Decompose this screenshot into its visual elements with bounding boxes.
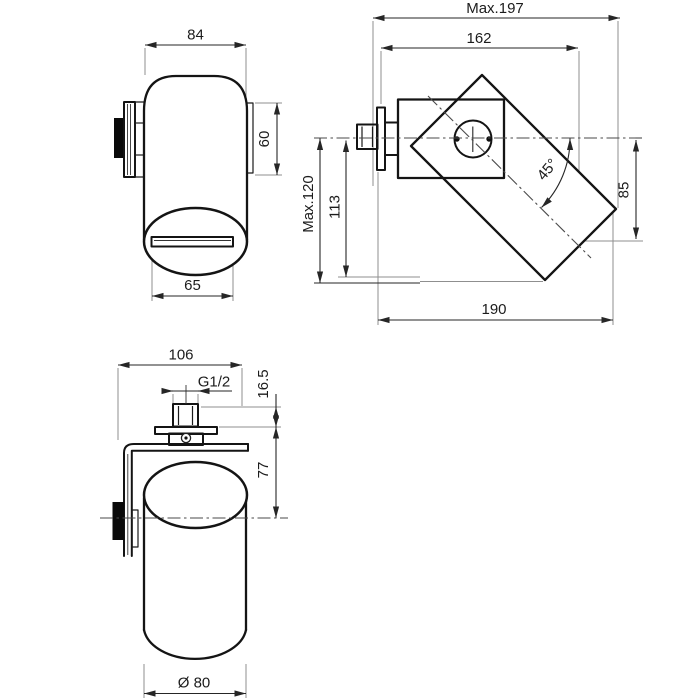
dim-side-outlet-offset: 85 bbox=[616, 182, 633, 199]
pivot-dot-right bbox=[486, 136, 491, 141]
spout-dimension-drawing: 84 60 65 Max.197 bbox=[0, 0, 700, 700]
dim-top-thread: G1/2 bbox=[198, 374, 231, 391]
dim-side-depth: 190 bbox=[481, 301, 506, 318]
bracket-plate bbox=[124, 102, 135, 177]
screw-center-dot bbox=[184, 436, 187, 439]
dim-side-drop: 113 bbox=[327, 195, 344, 219]
wall-mount-block-top bbox=[113, 502, 125, 540]
dim-side-reach: 162 bbox=[466, 30, 491, 47]
flange-edge-top-view bbox=[132, 510, 138, 547]
body-cylinder-bottom bbox=[144, 630, 246, 659]
inlet-square-nut bbox=[173, 404, 198, 427]
pivot-dot-left bbox=[454, 136, 459, 141]
dim-front-flange-height: 60 bbox=[256, 131, 273, 148]
side-view: Max.197 162 Max.120 113 85 190 45° bbox=[300, 0, 644, 325]
technical-drawing-page: 84 60 65 Max.197 bbox=[0, 0, 700, 700]
dim-top-inlet-offset: 16.5 bbox=[255, 369, 272, 398]
adapter-step bbox=[385, 123, 398, 156]
dim-side-max-reach: Max.197 bbox=[466, 0, 524, 17]
dim-front-slot-width: 65 bbox=[184, 277, 201, 294]
dim-top-wall-to-axis: 77 bbox=[255, 462, 272, 479]
dim-top-width: 106 bbox=[168, 347, 193, 364]
dim-side-max-drop: Max.120 bbox=[300, 175, 317, 233]
top-view: 106 G1/2 16.5 77 Ø 80 bbox=[100, 347, 288, 699]
outlet-ellipse bbox=[144, 208, 247, 275]
front-view: 84 60 65 bbox=[114, 27, 282, 302]
hex-nut-side bbox=[357, 125, 378, 150]
dim-front-width: 84 bbox=[187, 27, 204, 44]
dim-top-diameter: Ø 80 bbox=[178, 675, 211, 692]
